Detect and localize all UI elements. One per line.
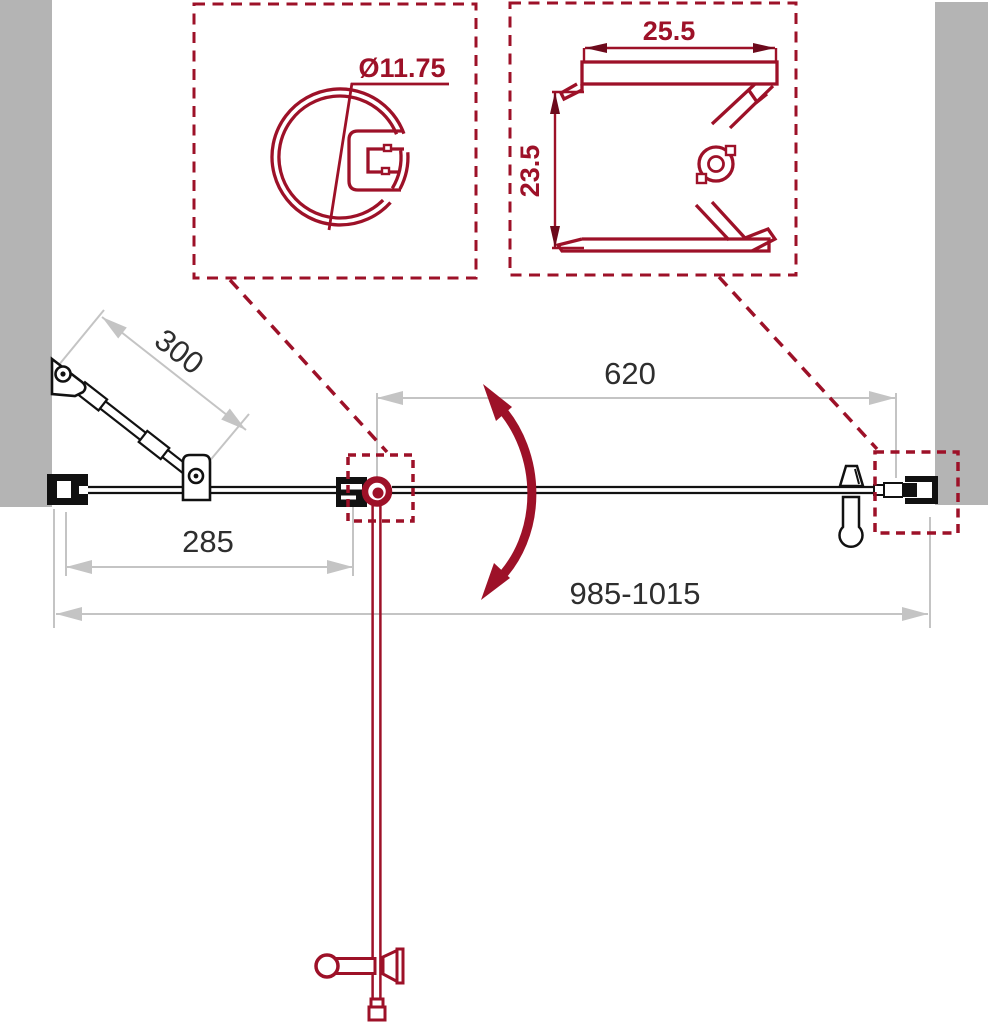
- right-wall: [935, 2, 988, 505]
- technical-drawing-canvas: Ø11.75 25.5 23.5 300 620 285 985-101: [0, 0, 988, 1022]
- dim-door-width-label: 620: [604, 356, 656, 391]
- detail-box-hinge-profile: [194, 4, 476, 278]
- door-bottom-cap: [369, 999, 385, 1020]
- wall-bracket: [52, 359, 85, 396]
- door-handle-closed: [840, 466, 864, 547]
- hinge-profile-drawing: [272, 83, 449, 230]
- wall-profile-right: [874, 476, 938, 504]
- door-handle-open: [316, 949, 403, 983]
- wall-profile-dimensions: [552, 48, 776, 248]
- leader-wall-detail: [719, 277, 877, 449]
- fixed-panel-glass: [88, 487, 336, 493]
- hinge-profile-diameter-label: Ø11.75: [358, 53, 445, 83]
- leader-hinge-detail: [230, 280, 387, 452]
- support-bar-sleeve-lower: [139, 431, 170, 459]
- wall-profile-dimension-arrows: [550, 43, 775, 248]
- door-glass-closed: [392, 487, 874, 493]
- wall-profile-left: [47, 474, 88, 505]
- glass-clamp: [183, 455, 210, 500]
- left-wall: [0, 0, 52, 507]
- dim-fixed-panel-label: 285: [182, 524, 234, 559]
- door-glass-open: [373, 505, 381, 999]
- wall-profile-drawing: [558, 62, 777, 251]
- dim-support-bar-label: 300: [148, 322, 210, 381]
- dim-total-width-label: 985-1015: [569, 576, 700, 611]
- hinge-pivot: [365, 480, 389, 504]
- wall-profile-height-label: 23.5: [515, 145, 545, 198]
- wall-profile-width-label: 25.5: [643, 16, 696, 46]
